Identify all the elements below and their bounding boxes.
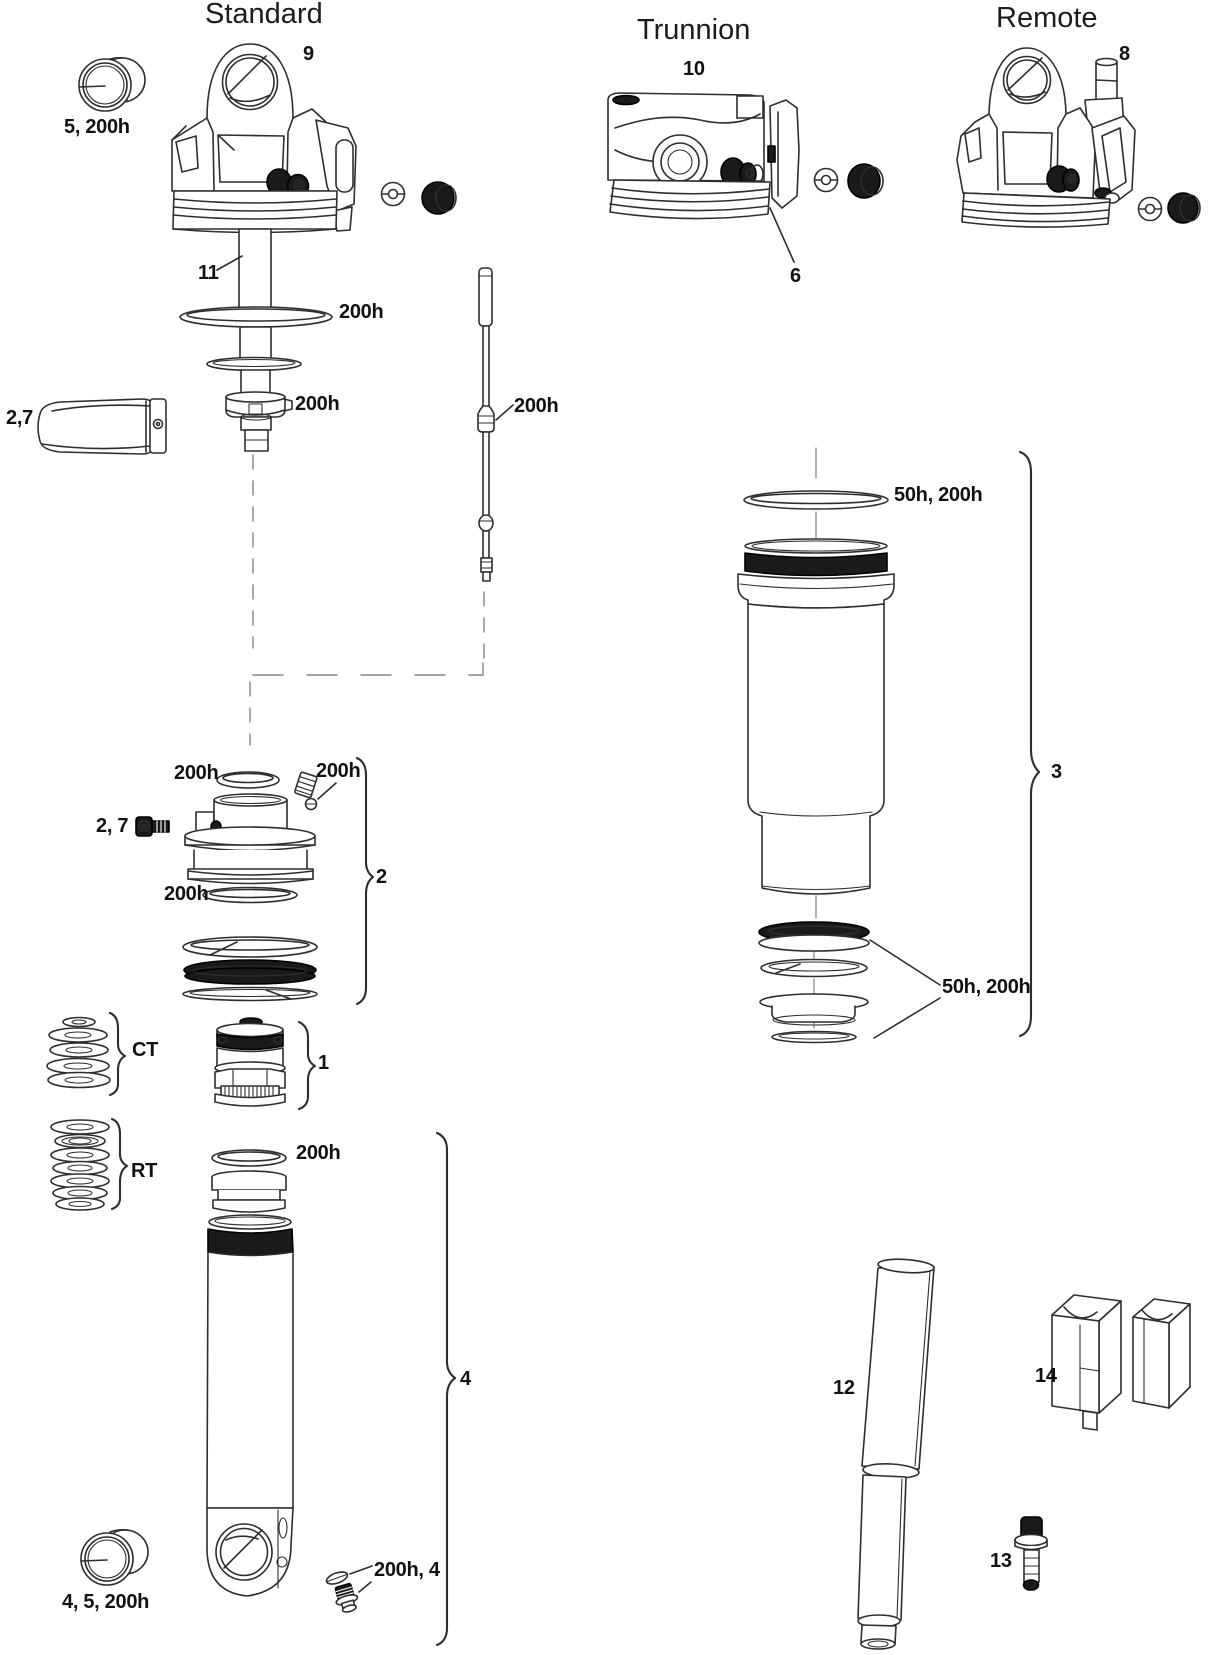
brace-ct bbox=[110, 1013, 125, 1095]
diagram-linework bbox=[0, 0, 1214, 1655]
alignment-lines bbox=[250, 448, 816, 1028]
label-part6: 6 bbox=[790, 266, 801, 286]
damper-piston-assembly bbox=[215, 1018, 285, 1106]
label-bushing-bottom: 4, 5, 200h bbox=[62, 1592, 149, 1612]
label-part4: 4 bbox=[460, 1369, 471, 1389]
washer-and-valve-cap-standard bbox=[382, 182, 457, 214]
rebound-rod bbox=[478, 268, 513, 581]
piston-bolt bbox=[136, 817, 169, 836]
label-rod-200h: 200h bbox=[514, 396, 558, 416]
bushing-bottom bbox=[81, 1530, 148, 1585]
label-part9: 9 bbox=[303, 44, 314, 64]
brace-part1 bbox=[299, 1022, 315, 1109]
label-part13: 13 bbox=[990, 1551, 1012, 1571]
washer-and-valve-cap-trunnion bbox=[815, 164, 884, 198]
label-part3: 3 bbox=[1051, 762, 1062, 782]
section-title-trunnion: Trunnion bbox=[637, 16, 750, 45]
bleed-pill-and-plug bbox=[325, 1566, 372, 1614]
brace-part3 bbox=[1020, 452, 1039, 1036]
label-part10: 10 bbox=[683, 59, 705, 79]
set-screw bbox=[294, 772, 317, 798]
shaft-clamp-blocks bbox=[1052, 1295, 1190, 1430]
label-piston-oring-low: 200h bbox=[164, 884, 208, 904]
label-plug-200h4: 200h, 4 bbox=[374, 1560, 440, 1580]
damper-eyelet bbox=[207, 1508, 293, 1596]
air-can-seals bbox=[759, 922, 940, 1043]
label-shaft11: 11 bbox=[198, 263, 219, 283]
label-part2: 2 bbox=[376, 867, 387, 887]
rt-shim-stack bbox=[51, 1120, 109, 1210]
exploded-parts-diagram: Standard Trunnion Remote 9 5, 200h 11 20… bbox=[0, 0, 1214, 1655]
label-part12: 12 bbox=[833, 1378, 855, 1398]
label-bushing-top: 5, 200h bbox=[64, 117, 130, 137]
brace-part2 bbox=[357, 758, 373, 1004]
label-clamp27: 2,7 bbox=[6, 408, 33, 428]
standard-shock-head bbox=[172, 44, 356, 233]
shaft-bolt bbox=[1015, 1517, 1047, 1590]
bottom-out-bumper bbox=[226, 392, 292, 417]
label-screw27: 2, 7 bbox=[96, 816, 128, 836]
washer-and-valve-cap-remote bbox=[1139, 193, 1201, 223]
brace-rt bbox=[112, 1119, 127, 1209]
section-title-standard: Standard bbox=[205, 0, 323, 29]
label-part14: 14 bbox=[1035, 1366, 1057, 1386]
ct-shim-stack bbox=[47, 1018, 110, 1088]
trunnion-shock-head bbox=[608, 93, 799, 262]
seal-install-tool bbox=[858, 1258, 934, 1649]
label-rt: RT bbox=[131, 1161, 157, 1181]
label-piston-oring-top: 200h bbox=[174, 763, 218, 783]
label-ring-200h: 200h bbox=[339, 302, 383, 322]
remote-shock-head bbox=[957, 48, 1135, 227]
label-ct: CT bbox=[132, 1040, 158, 1060]
mount-clamp bbox=[38, 399, 166, 454]
label-can-seals: 50h, 200h bbox=[942, 977, 1030, 997]
section-title-remote: Remote bbox=[996, 4, 1098, 33]
label-body-oring: 200h bbox=[296, 1143, 340, 1163]
damper-body bbox=[207, 1150, 293, 1596]
label-part8: 8 bbox=[1119, 44, 1130, 64]
label-setscrew-200h: 200h bbox=[316, 761, 360, 781]
label-part1: 1 bbox=[318, 1053, 329, 1073]
label-bumper-200h: 200h bbox=[295, 394, 339, 414]
bushing-top bbox=[79, 58, 145, 111]
label-can-oring: 50h, 200h bbox=[894, 485, 982, 505]
air-can bbox=[738, 491, 894, 894]
